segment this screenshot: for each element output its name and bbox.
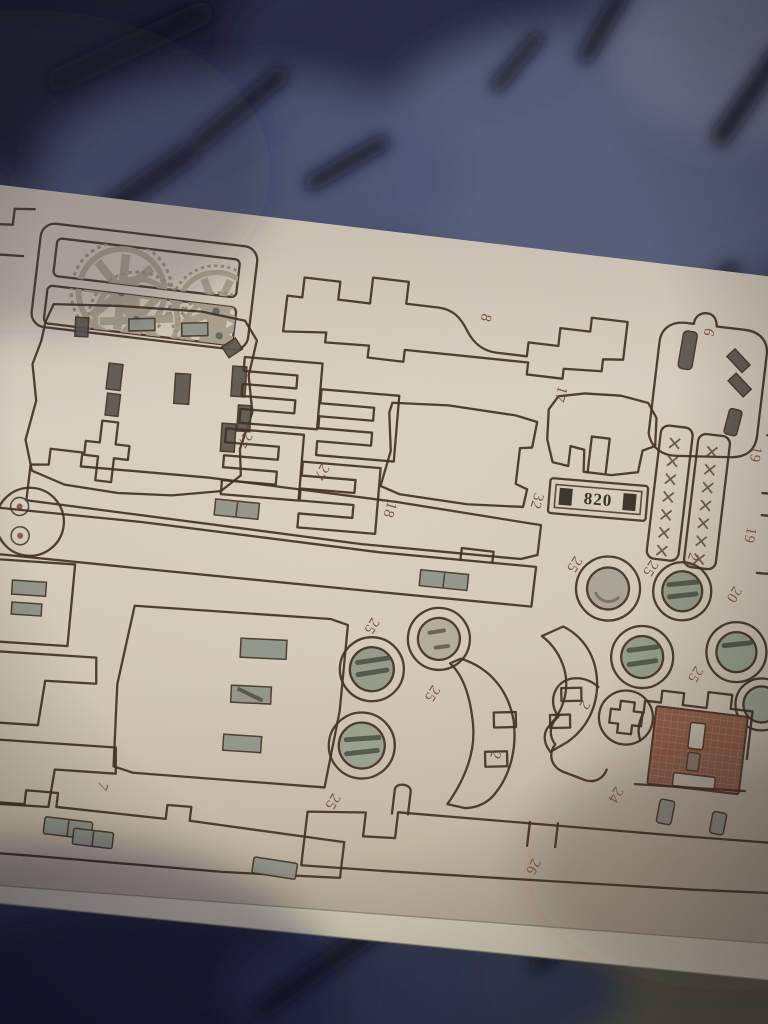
photo-svg: 820 xyxy=(0,0,768,1024)
photo-canvas: 820 xyxy=(0,0,768,1024)
part-number-label: 19 xyxy=(740,526,759,545)
part-number-label: 19 xyxy=(746,445,765,464)
